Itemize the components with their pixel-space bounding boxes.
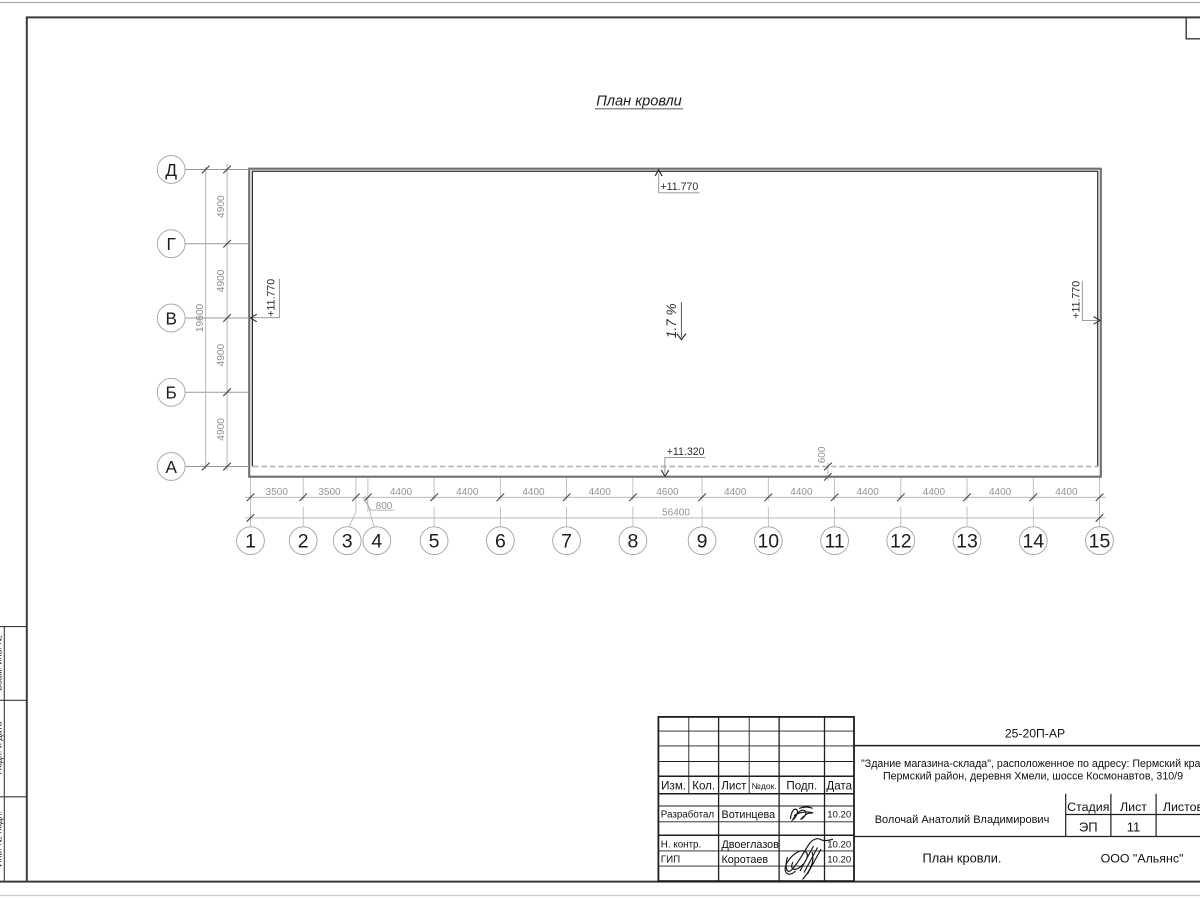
svg-text:Н. контр.: Н. контр. [661,840,701,851]
svg-text:+11.320: +11.320 [667,446,705,458]
svg-text:10: 10 [757,531,779,553]
svg-text:56400: 56400 [662,507,690,518]
svg-text:Лист: Лист [1120,800,1147,814]
svg-text:Пермский район, деревня Хмели,: Пермский район, деревня Хмели, шоссе Кос… [883,771,1183,783]
svg-text:4400: 4400 [589,487,612,498]
svg-text:10.20: 10.20 [827,855,851,866]
svg-text:План кровли.: План кровли. [923,851,1002,866]
svg-text:4900: 4900 [216,195,227,218]
svg-text:4400: 4400 [522,487,545,498]
svg-text:4900: 4900 [216,269,227,292]
svg-text:15: 15 [1089,531,1111,553]
svg-text:3500: 3500 [266,487,289,498]
svg-text:4400: 4400 [390,487,413,498]
svg-text:8: 8 [627,531,638,553]
svg-text:4600: 4600 [656,487,679,498]
svg-text:Б: Б [166,383,177,403]
svg-text:10.20: 10.20 [827,810,851,821]
svg-text:+11.770: +11.770 [661,181,699,193]
svg-text:4400: 4400 [989,487,1012,498]
svg-text:4900: 4900 [216,418,227,441]
svg-text:12: 12 [890,531,912,553]
svg-text:4400: 4400 [456,487,479,498]
svg-text:Листов: Листов [1163,800,1200,814]
svg-text:11: 11 [1127,820,1141,835]
svg-text:Дата: Дата [826,779,852,792]
svg-text:2: 2 [298,531,309,553]
svg-text:Кол.: Кол. [692,779,715,792]
svg-text:14: 14 [1022,531,1044,553]
svg-text:1: 1 [245,531,256,553]
svg-text:11: 11 [824,531,844,553]
svg-text:19600: 19600 [195,304,206,333]
svg-text:ГИП: ГИП [661,855,680,866]
svg-text:№док.: №док. [752,781,777,791]
svg-text:3500: 3500 [318,487,341,498]
svg-text:4400: 4400 [857,487,880,498]
svg-text:Вотинцева: Вотинцева [722,809,776,821]
svg-text:+11.770: +11.770 [265,279,277,317]
svg-text:В: В [165,308,176,328]
svg-text:Инв. № подл.: Инв. № подл. [0,811,4,867]
svg-text:4400: 4400 [923,487,946,498]
svg-text:4900: 4900 [216,343,227,366]
svg-text:4400: 4400 [790,487,813,498]
svg-text:+11.770: +11.770 [1071,281,1083,319]
svg-text:Изм.: Изм. [661,779,686,792]
svg-text:5: 5 [429,531,440,553]
svg-text:9: 9 [697,531,708,553]
svg-text:800: 800 [376,501,393,512]
svg-text:Подп. и дата: Подп. и дата [0,721,4,774]
svg-text:Лист: Лист [721,779,747,792]
svg-text:"Здание магазина-склада", расп: "Здание магазина-склада", расположенное … [861,758,1200,770]
svg-text:25-20П-АР: 25-20П-АР [1005,726,1065,740]
svg-text:13: 13 [956,531,978,553]
svg-text:Разработал: Разработал [661,810,715,821]
svg-text:10.20: 10.20 [827,840,851,851]
svg-text:ЭП: ЭП [1079,820,1098,835]
svg-text:Подп.: Подп. [786,779,817,792]
svg-text:Двоеглазов: Двоеглазов [722,839,780,851]
svg-text:4: 4 [371,531,382,553]
svg-text:Волочай Анатолий Владимирович: Волочай Анатолий Владимирович [875,814,1050,826]
svg-text:600: 600 [817,446,828,463]
svg-text:7: 7 [561,531,572,553]
svg-text:Д: Д [165,160,177,180]
svg-text:Г: Г [167,234,176,254]
svg-text:План кровли: План кровли [596,94,682,110]
svg-text:6: 6 [495,531,506,553]
svg-text:Коротаев: Коротаев [722,854,769,866]
svg-text:4400: 4400 [1055,487,1078,498]
svg-text:Взам. инв. №: Взам. инв. № [0,635,4,691]
svg-text:1.7 %: 1.7 % [664,303,679,338]
svg-text:3: 3 [342,531,353,553]
svg-text:А: А [165,457,177,477]
svg-text:Стадия: Стадия [1067,800,1109,814]
svg-text:ООО "Альянс": ООО "Альянс" [1101,852,1184,866]
svg-text:4400: 4400 [724,487,747,498]
